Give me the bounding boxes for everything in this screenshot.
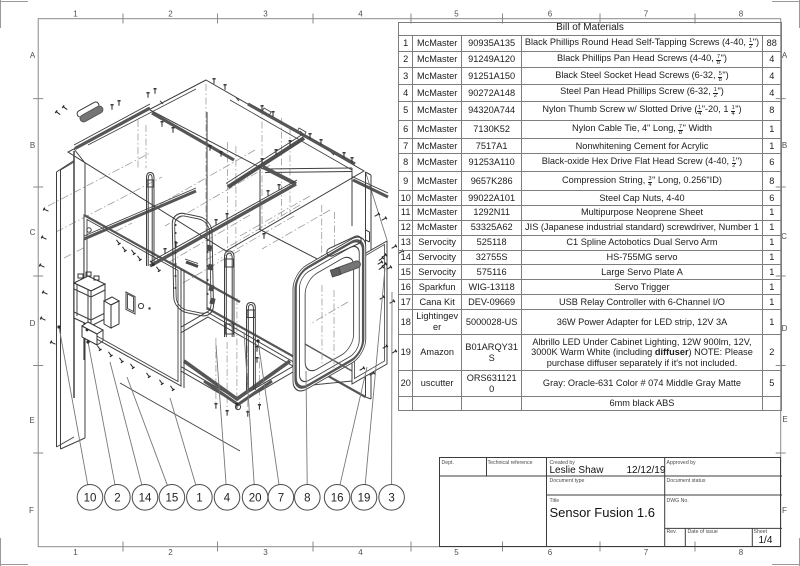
- svg-text:A: A: [782, 51, 788, 60]
- svg-text:2: 2: [168, 10, 173, 19]
- svg-text:7: 7: [644, 548, 649, 557]
- svg-text:6: 6: [548, 548, 553, 557]
- svg-text:19: 19: [358, 492, 371, 504]
- svg-text:B: B: [30, 141, 35, 150]
- svg-text:2: 2: [168, 548, 173, 557]
- svg-text:4: 4: [224, 492, 231, 504]
- svg-text:F: F: [29, 506, 34, 515]
- svg-text:1: 1: [196, 492, 202, 504]
- svg-text:E: E: [782, 415, 787, 424]
- svg-text:10: 10: [84, 492, 97, 504]
- svg-text:16: 16: [331, 492, 344, 504]
- svg-text:8: 8: [739, 10, 744, 19]
- svg-text:3: 3: [263, 10, 268, 19]
- svg-text:A: A: [30, 51, 36, 60]
- svg-text:7: 7: [644, 10, 649, 19]
- svg-text:14: 14: [139, 492, 152, 504]
- svg-text:D: D: [782, 324, 788, 333]
- svg-text:1: 1: [73, 10, 78, 19]
- svg-text:5: 5: [454, 548, 459, 557]
- svg-text:5: 5: [454, 10, 459, 19]
- svg-text:8: 8: [739, 548, 744, 557]
- svg-text:1: 1: [73, 548, 78, 557]
- svg-text:15: 15: [166, 492, 179, 504]
- svg-text:7: 7: [278, 492, 284, 504]
- svg-text:2: 2: [114, 492, 120, 504]
- svg-text:C: C: [781, 232, 787, 241]
- svg-text:C: C: [30, 228, 36, 237]
- svg-text:6: 6: [548, 10, 553, 19]
- svg-text:4: 4: [358, 548, 363, 557]
- svg-text:D: D: [30, 319, 36, 328]
- svg-text:B: B: [782, 141, 787, 150]
- svg-text:3: 3: [263, 548, 268, 557]
- svg-text:20: 20: [249, 492, 262, 504]
- svg-text:4: 4: [358, 10, 363, 19]
- svg-text:3: 3: [388, 492, 394, 504]
- svg-text:F: F: [782, 506, 787, 515]
- svg-text:E: E: [29, 416, 34, 425]
- svg-text:8: 8: [304, 492, 310, 504]
